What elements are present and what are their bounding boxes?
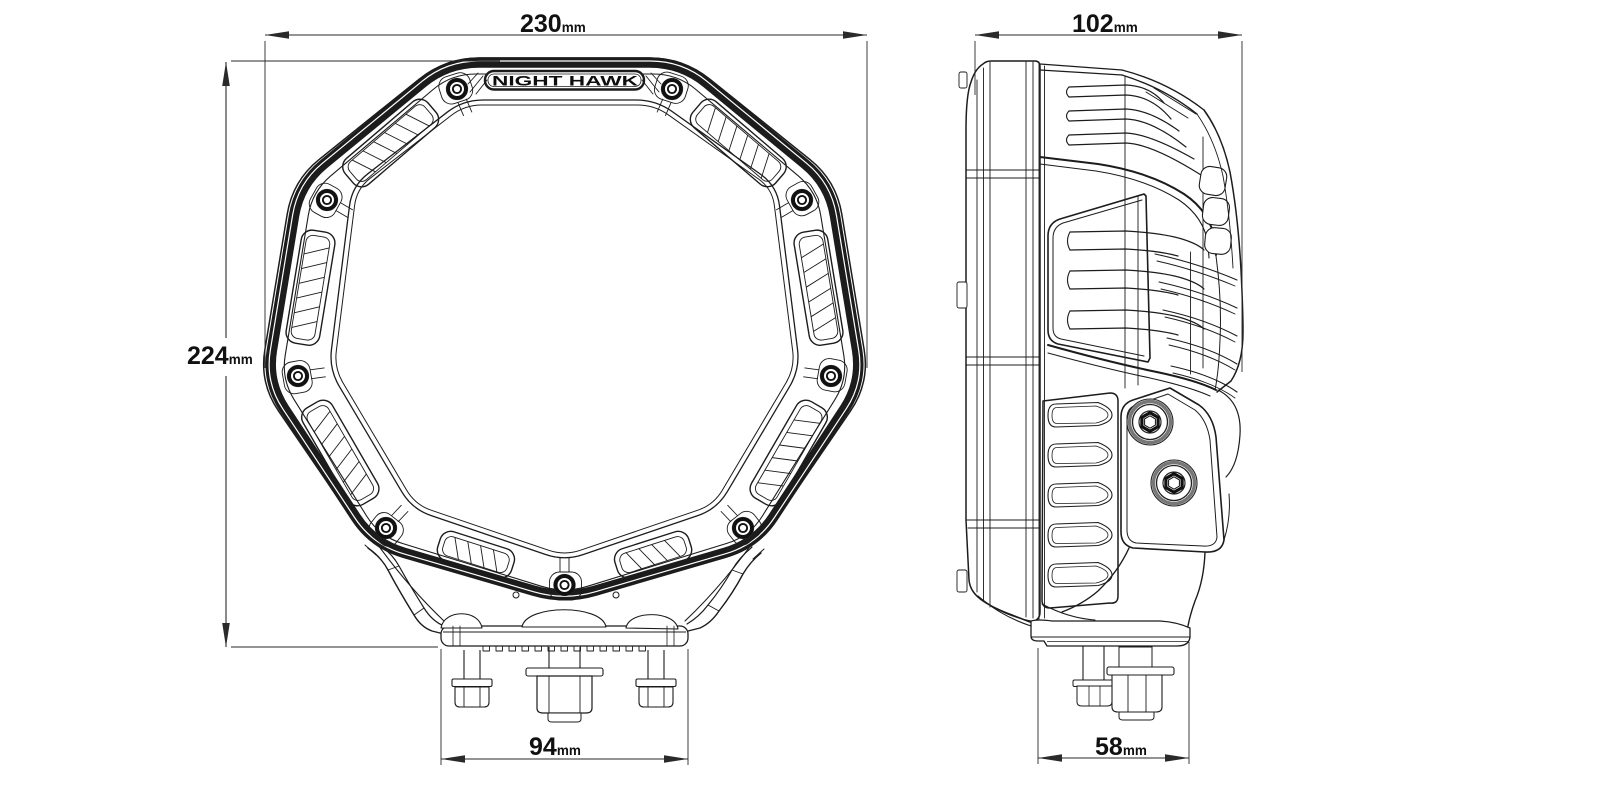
svg-text:NIGHT HAWK: NIGHT HAWK bbox=[492, 73, 638, 89]
